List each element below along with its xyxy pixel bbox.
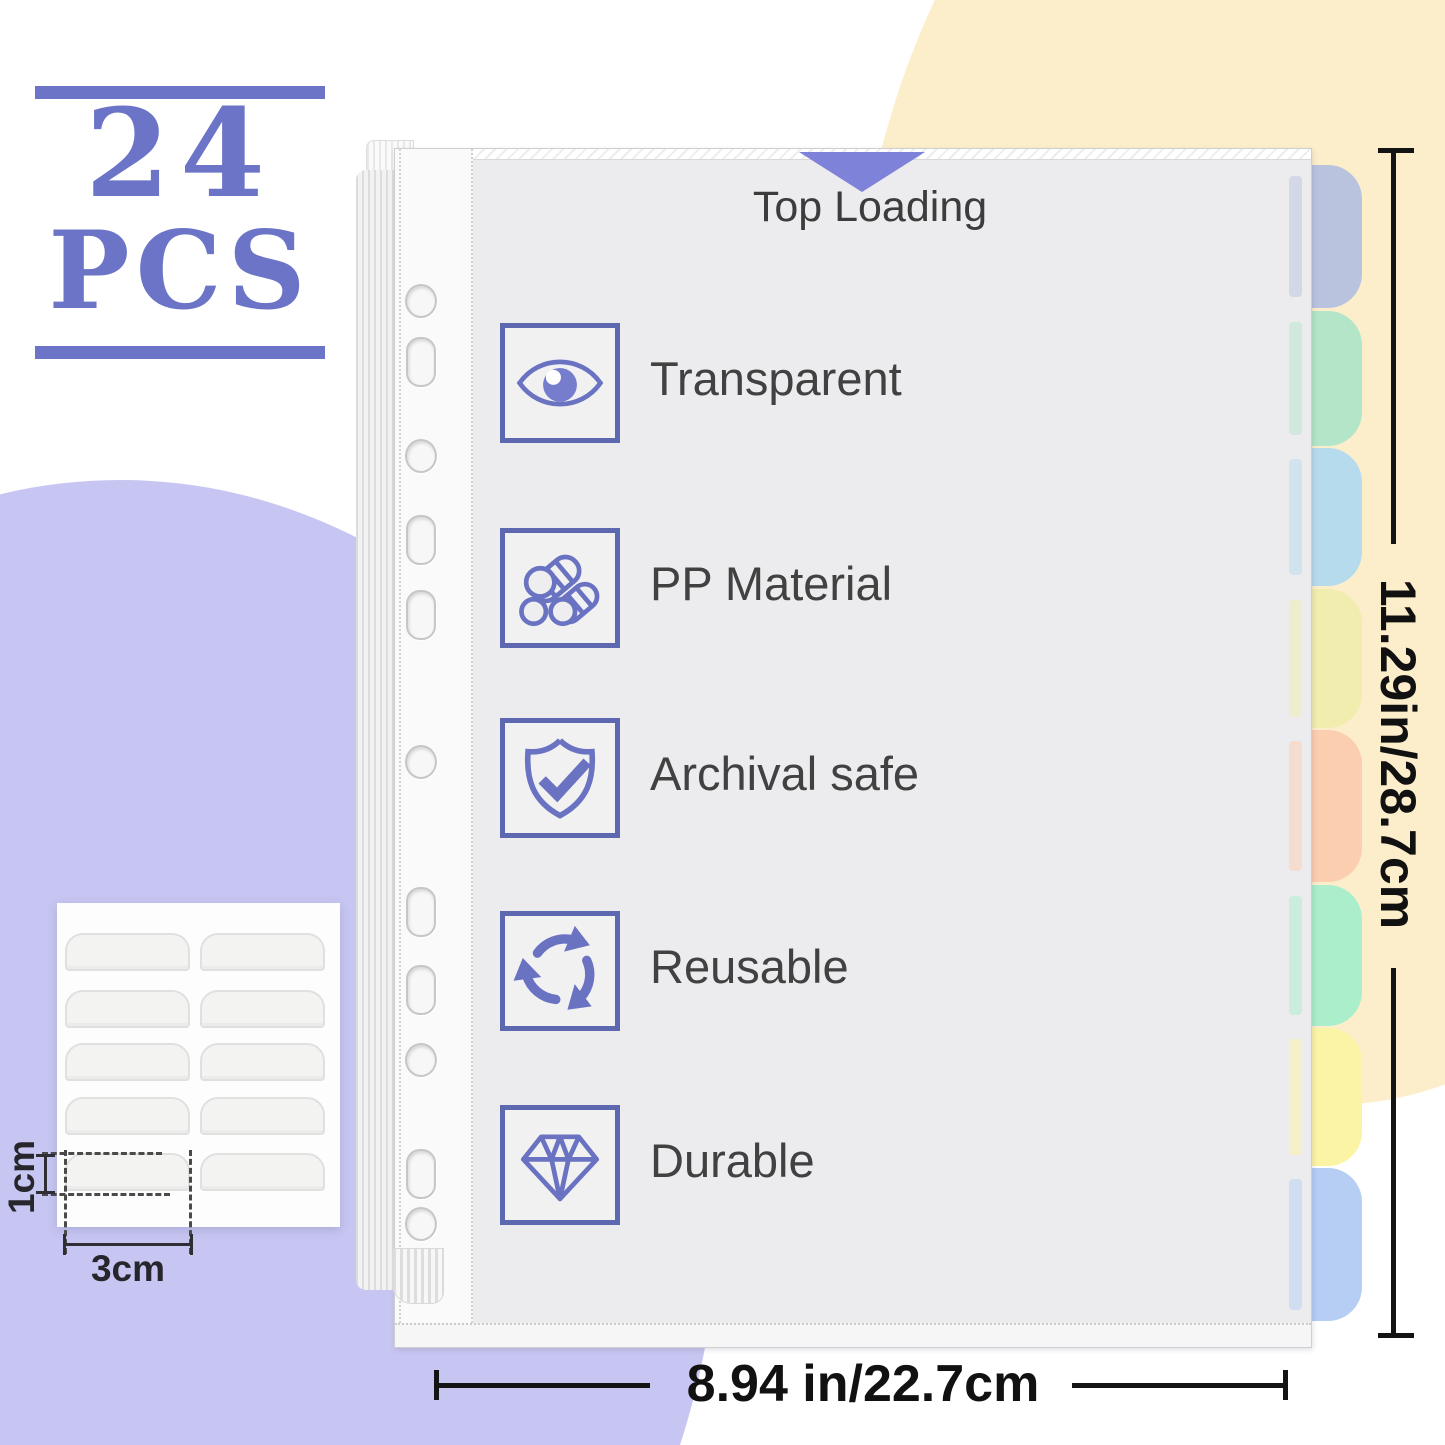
tab-sticker [65,1043,190,1081]
tab-base-strip [1289,1179,1302,1310]
sheet-stack-edge [356,170,394,1290]
height-dim-line-top [1391,148,1396,544]
feature-box-pp-material [500,528,620,648]
sheet-bottom-edge [395,1323,1311,1347]
tab-sticker [200,1097,325,1135]
width-dim-cap-right [1283,1370,1288,1400]
tab-sticker [65,933,190,971]
tab-sticker-sheet [57,903,340,1227]
tab-sticker [200,1153,325,1191]
tab-base-strip [1289,176,1302,297]
tab-sticker [200,933,325,971]
height-dimension-label: 11.29in/28.7cm [1369,504,1427,1004]
feature-label: Archival safe [650,713,1210,833]
binder-hole [406,337,436,387]
sticker-width-cap-left [63,1234,66,1255]
sticker-width-line [64,1243,192,1246]
tab-base-strip [1289,896,1302,1015]
feature-label: Transparent [650,318,1210,438]
top-loading-label: Top Loading [680,183,1060,232]
binder-hole [405,1043,437,1077]
binding-strip [395,149,473,1347]
sticker-width-label: 3cm [78,1248,178,1290]
binder-hole [406,515,436,565]
feature-label: Durable [650,1100,1210,1220]
diamond-icon [513,1118,607,1212]
recycle-icon [513,924,607,1018]
feature-box-archival [500,718,620,838]
eye-icon [513,336,607,430]
tab-sticker [65,990,190,1028]
binder-hole [405,284,437,318]
binder-hole [406,965,436,1015]
sticker-height-label: 1cm [1,1137,43,1217]
binder-hole [405,439,437,473]
feature-box-reusable [500,911,620,1031]
badge-unit: PCS [0,212,360,331]
sticker-height-line [44,1155,47,1193]
feature-label: PP Material [650,523,1210,643]
feature-label: Reusable [650,906,1210,1026]
tab-base-strip [1289,741,1302,871]
binder-hole [406,887,436,937]
product-infographic: 24 PCS Top Loading Transparent [0,0,1445,1445]
tab-base-strip [1289,459,1302,575]
pp-material-icon [513,541,607,635]
width-dimension-label: 8.94 in/22.7cm [663,1354,1063,1414]
height-dim-cap-bottom [1378,1333,1414,1338]
tab-sticker [65,1153,190,1191]
feature-box-durable [500,1105,620,1225]
badge-count: 24 [0,92,360,214]
binder-hole [406,1149,436,1199]
shield-check-icon [513,731,607,825]
width-dim-line-left [434,1383,650,1388]
tab-sticker [200,1043,325,1081]
binder-hole [406,590,436,640]
tab-sticker [65,1097,190,1135]
tab-base-strip [1289,600,1302,717]
height-dim-cap-top [1378,148,1414,153]
binding-seam [399,149,403,1347]
tab-sticker [200,990,325,1028]
feature-box-transparent [500,323,620,443]
height-dim-line-bottom [1391,968,1396,1336]
sticker-dash-top [42,1152,162,1155]
binder-hole [405,1207,437,1241]
badge-bottom-bar [35,346,325,359]
sheet-corner-rib [392,1248,444,1304]
sticker-width-cap-right [190,1234,193,1255]
binder-hole [405,745,437,779]
sticker-dash-bottom [42,1193,170,1196]
tab-base-strip [1289,1039,1302,1155]
width-dim-line-right [1072,1383,1286,1388]
tab-base-strip [1289,322,1302,435]
